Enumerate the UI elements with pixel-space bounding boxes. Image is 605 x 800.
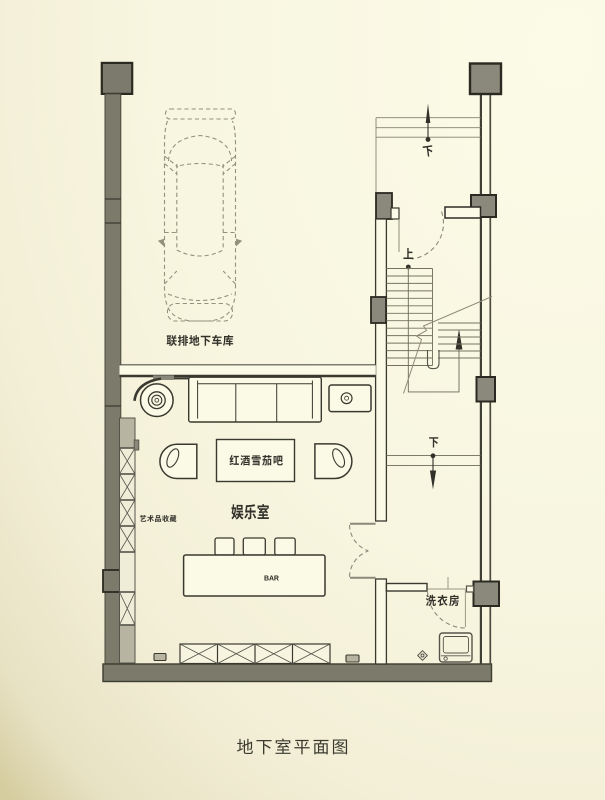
svg-text:BAR: BAR: [264, 576, 279, 583]
